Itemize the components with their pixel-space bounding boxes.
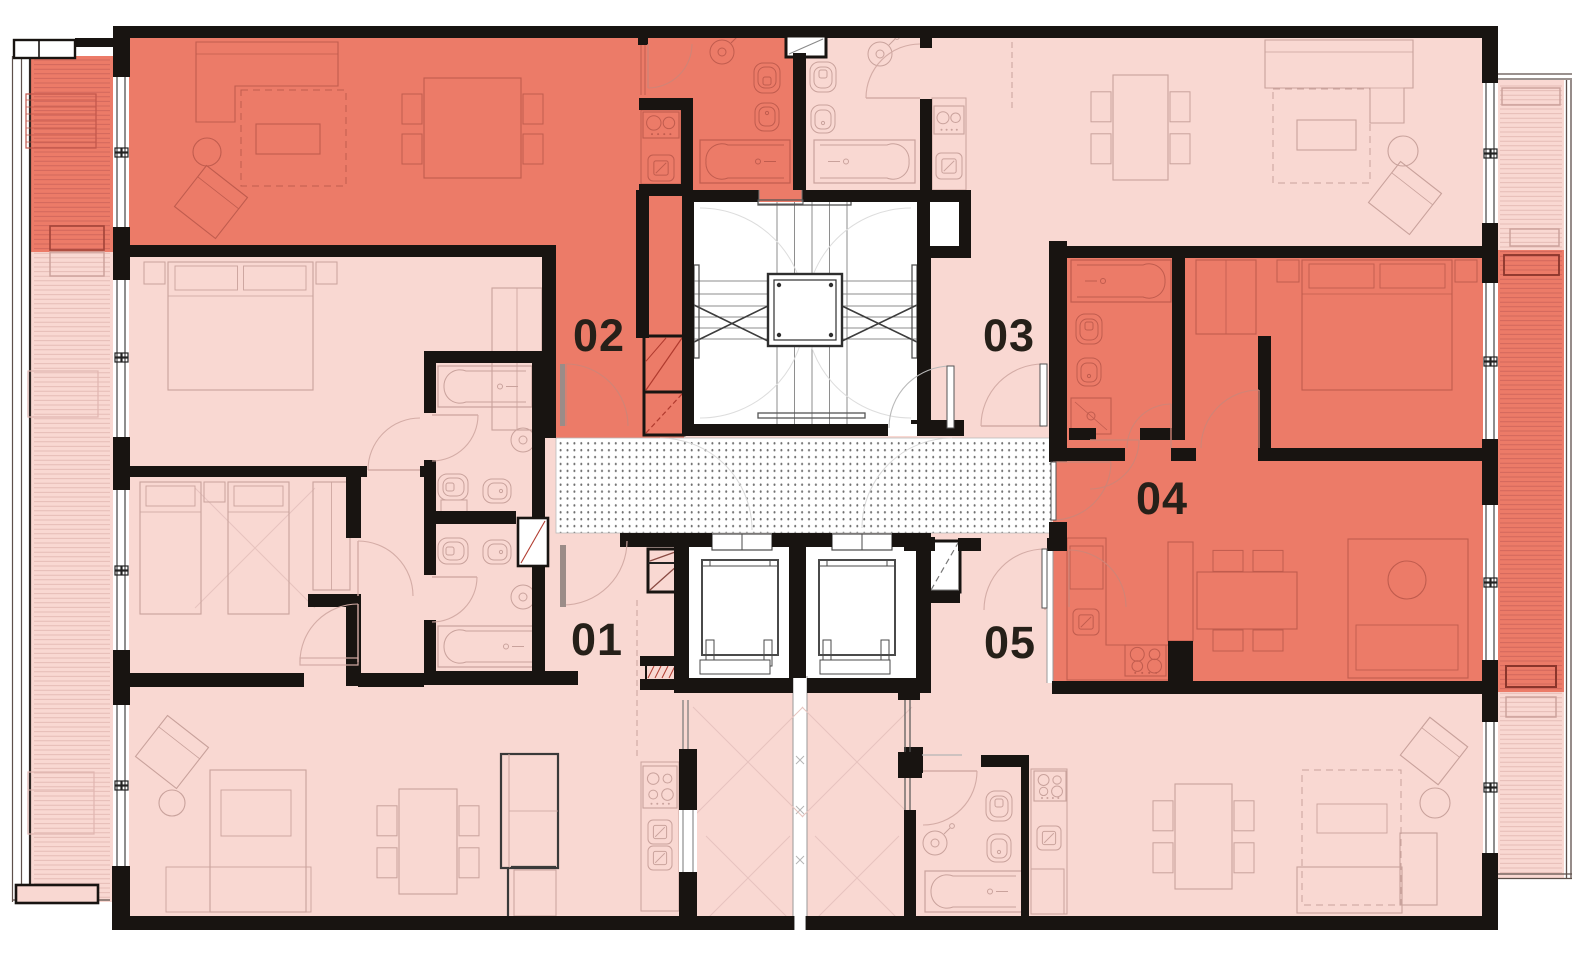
svg-text:05: 05	[984, 617, 1036, 668]
svg-text:01: 01	[571, 614, 623, 665]
svg-text:04: 04	[1136, 473, 1188, 524]
svg-text:03: 03	[983, 310, 1035, 361]
svg-text:02: 02	[573, 310, 625, 361]
